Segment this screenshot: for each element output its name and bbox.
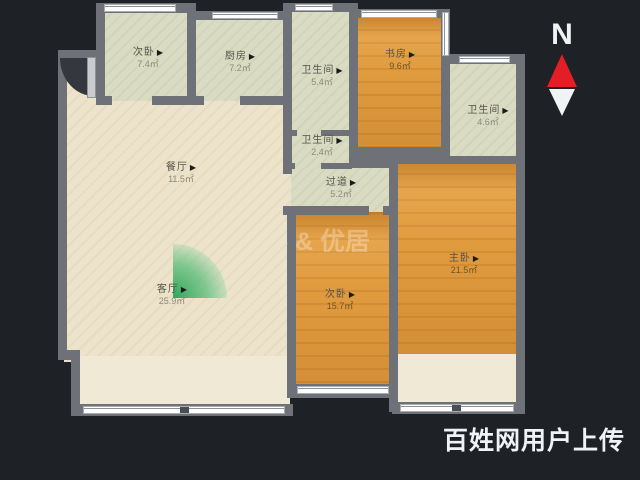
wall [383, 206, 398, 215]
label-arrow-icon: ▶ [157, 48, 163, 57]
label-arrow-icon: ▶ [181, 285, 187, 294]
label-arrow-icon: ▶ [190, 163, 196, 172]
room-area: 9.6㎡ [385, 61, 415, 73]
wall [389, 156, 398, 412]
room-area: 21.5㎡ [449, 265, 479, 277]
window-handle [452, 405, 461, 411]
bottom-right-watermark: 百姓网用户上传 [443, 421, 625, 457]
room-label-kitchen: 厨房▶ 7.2㎡ [225, 50, 255, 75]
room-area: 7.2㎡ [225, 63, 255, 75]
label-arrow-icon: ▶ [249, 52, 255, 61]
wall [283, 206, 369, 215]
room-label-master-bedroom: 主卧▶ 21.5㎡ [449, 252, 479, 277]
wall [58, 56, 67, 358]
room-label-bedroom-b: 次卧▶ 15.7㎡ [325, 288, 355, 313]
window [104, 4, 176, 12]
room-area: 25.9㎡ [157, 296, 187, 308]
wall [349, 157, 394, 168]
label-arrow-icon: ▶ [502, 106, 508, 115]
wall [349, 3, 358, 147]
label-arrow-icon: ▶ [350, 178, 356, 187]
room-area: 7.4㎡ [133, 59, 163, 71]
wall [389, 156, 516, 164]
room-label-bath-3: 卫生间▶ 4.6㎡ [467, 104, 508, 129]
master-balcony-floor [396, 354, 516, 406]
room-area: 4.6㎡ [467, 117, 508, 129]
window [297, 386, 389, 394]
wall [516, 54, 525, 414]
room-label-living: 客厅▶ 25.9㎡ [157, 283, 187, 308]
window-handle [180, 407, 189, 413]
center-watermark: 客 & 优居 [287, 222, 387, 252]
wall [240, 96, 292, 105]
living-balcony-floor [76, 356, 290, 410]
wall [321, 163, 352, 169]
label-arrow-icon: ▶ [409, 50, 415, 59]
room-label-bath-1: 卫生间▶ 5.4㎡ [301, 64, 342, 89]
label-arrow-icon: ▶ [336, 66, 342, 75]
window [442, 12, 449, 56]
room-label-hallway: 过道▶ 5.2㎡ [326, 176, 356, 201]
room-label-study: 书房▶ 9.6㎡ [385, 48, 415, 73]
compass-needle-icon [547, 54, 577, 116]
north-label: N [540, 20, 584, 50]
study-floor [354, 16, 443, 148]
label-arrow-icon: ▶ [336, 136, 342, 145]
wall [283, 130, 297, 136]
center-watermark-text: 客 & 优居 [287, 222, 370, 252]
entry-door-leaf [87, 57, 96, 98]
window [295, 4, 333, 11]
room-area: 5.4㎡ [301, 77, 342, 89]
room-label-bath-2: 卫生间▶ 2.4㎡ [301, 134, 342, 159]
wall [187, 96, 204, 105]
room-area: 11.5㎡ [166, 174, 196, 186]
window [361, 10, 437, 18]
room-area: 15.7㎡ [325, 301, 355, 313]
room-area: 2.4㎡ [301, 147, 342, 159]
wall [283, 163, 295, 169]
floorplan-canvas: 次卧▶ 7.4㎡ 厨房▶ 7.2㎡ 卫生间▶ 5.4㎡ 书房▶ 9.6㎡ 卫生间… [0, 0, 640, 480]
wall [283, 3, 292, 174]
living-dining-floor [64, 96, 292, 362]
wall [96, 96, 112, 105]
room-label-bedroom-a: 次卧▶ 7.4㎡ [133, 46, 163, 71]
window [212, 12, 278, 19]
room-label-dining: 餐厅▶ 11.5㎡ [166, 161, 196, 186]
window [459, 56, 510, 63]
north-compass: N [540, 20, 584, 124]
label-arrow-icon: ▶ [473, 254, 479, 263]
room-area: 5.2㎡ [326, 189, 356, 201]
label-arrow-icon: ▶ [349, 290, 355, 299]
